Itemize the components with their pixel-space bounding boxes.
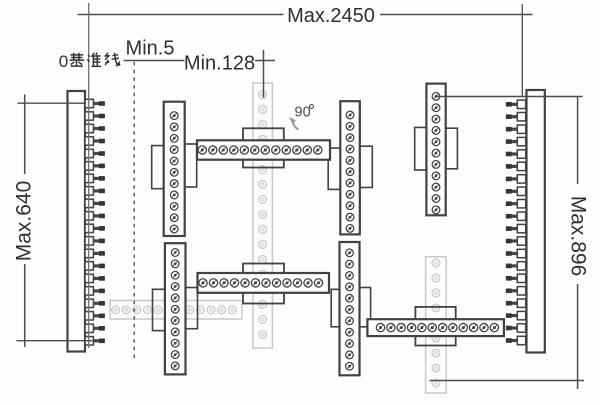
svg-text:Max.2450: Max.2450 — [287, 5, 375, 27]
svg-text:Min.5: Min.5 — [126, 38, 175, 60]
svg-text:Min.128: Min.128 — [184, 53, 255, 75]
svg-text:0: 0 — [59, 52, 68, 71]
svg-text:Max.640: Max.640 — [12, 181, 35, 262]
svg-text:90: 90 — [295, 105, 311, 121]
svg-text:Max.896: Max.896 — [566, 196, 589, 277]
